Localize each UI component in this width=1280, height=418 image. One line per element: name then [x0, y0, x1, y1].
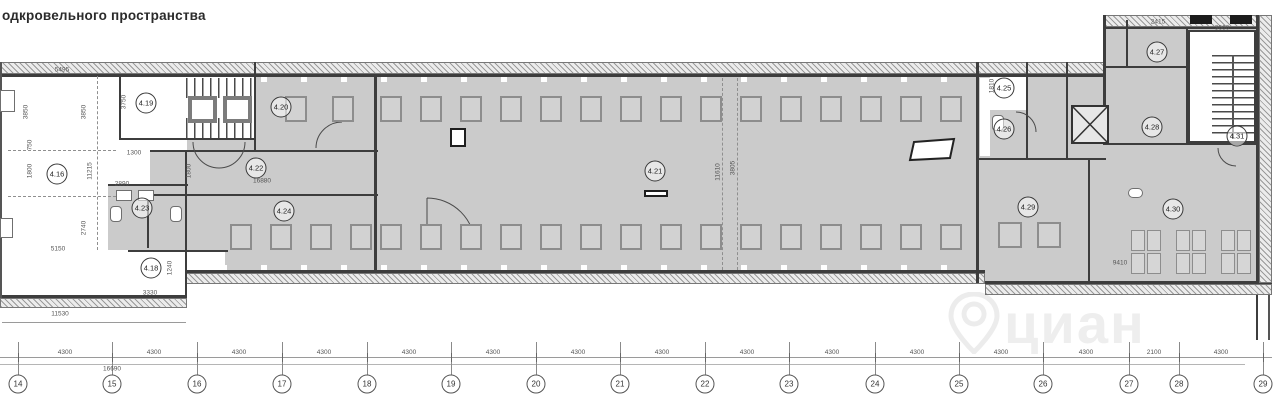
skylight: [500, 224, 522, 250]
map-pin-icon: [948, 292, 1000, 354]
skylight: [1192, 230, 1206, 251]
skylight: [860, 224, 882, 250]
watermark: циан: [948, 288, 1188, 358]
skylight: [540, 224, 562, 250]
grid-spacing-label: 4300: [232, 349, 246, 356]
grid-spacing-label: 4300: [58, 349, 72, 356]
skylight: [1147, 253, 1161, 274]
dimension-label: 11530: [51, 311, 69, 318]
dimension-label: 3750: [121, 95, 128, 109]
room-label-4-31: 4.31: [1227, 126, 1248, 147]
skylight: [1131, 253, 1145, 274]
skylight: [660, 224, 682, 250]
dimension-label: 9410: [1113, 260, 1127, 267]
grid-spacing-label: 4300: [910, 349, 924, 356]
grid-tick: [282, 353, 283, 362]
dimension-label: 750: [27, 140, 34, 151]
skylight: [1037, 222, 1061, 248]
grid-spacing-label: 4300: [740, 349, 754, 356]
skylight: [740, 224, 762, 250]
skylight: [350, 224, 372, 250]
floor-plan-canvas: одкровельного пространства: [0, 0, 1280, 418]
skylight: [700, 224, 722, 250]
dimension-label: 3660: [1215, 25, 1229, 32]
room-label-4-23: 4.23: [132, 198, 153, 219]
grid-tick: [1263, 353, 1264, 362]
grid-spacing-label: 4300: [825, 349, 839, 356]
skylight: [740, 96, 762, 122]
left-dimension-line: [2, 322, 186, 323]
room-label-4-18: 4.18: [141, 258, 162, 279]
grid-tick: [705, 353, 706, 362]
grid-tick: [18, 353, 19, 362]
grid-column-17: 17: [273, 375, 292, 394]
room-label-4-27: 4.27: [1147, 42, 1168, 63]
grid-spacing-label: 4300: [1214, 349, 1228, 356]
skylight: [820, 224, 842, 250]
grid-spacing-label: 4300: [147, 349, 161, 356]
overall-dimension-line-2: [0, 364, 1245, 365]
grid-spacing-label: 4300: [486, 349, 500, 356]
skylight: [1237, 253, 1251, 274]
grid-column-20: 20: [527, 375, 546, 394]
grid-spacing-label: 4300: [402, 349, 416, 356]
skylight: [270, 224, 292, 250]
grid-spacing-label: 4300: [571, 349, 585, 356]
dimension-label: 2890: [115, 181, 129, 188]
dimension-label: 3850: [81, 105, 88, 119]
skylight: [380, 96, 402, 122]
room-label-4-26: 4.26: [994, 119, 1015, 140]
skylight: [900, 96, 922, 122]
grid-column-25: 25: [950, 375, 969, 394]
skylight: [460, 96, 482, 122]
grid-column-28: 28: [1170, 375, 1189, 394]
grid-column-26: 26: [1034, 375, 1053, 394]
dimension-label: 11610: [715, 163, 722, 181]
grid-column-24: 24: [866, 375, 885, 394]
skylight: [500, 96, 522, 122]
skylight: [460, 224, 482, 250]
grid-spacing-label: 4300: [655, 349, 669, 356]
skylight: [900, 224, 922, 250]
skylight: [620, 224, 642, 250]
dimension-label: 1800: [27, 164, 34, 178]
skylight: [1131, 230, 1145, 251]
skylight: [310, 224, 332, 250]
skylight: [1176, 230, 1190, 251]
grid-tick: [367, 353, 368, 362]
watermark-text: циан: [1004, 291, 1146, 356]
skylight: [580, 96, 602, 122]
grid-tick: [875, 353, 876, 362]
room-label-4-29: 4.29: [1018, 197, 1039, 218]
dimension-label: 2740: [81, 221, 88, 235]
dimension-label: 11215: [87, 162, 94, 180]
grid-column-15: 15: [103, 375, 122, 394]
skylight: [820, 96, 842, 122]
skylight: [1237, 230, 1251, 251]
dimension-label: 3330: [143, 290, 157, 297]
grid-tick: [197, 353, 198, 362]
dimension-label: 1800: [186, 164, 193, 178]
grid-column-27: 27: [1120, 375, 1139, 394]
skylight: [230, 224, 252, 250]
grid-column-14: 14: [9, 375, 28, 394]
grid-tick: [451, 353, 452, 362]
grid-spacing-label: 4300: [317, 349, 331, 356]
skylight: [860, 96, 882, 122]
skylight: [940, 224, 962, 250]
dimension-label: 1810: [989, 79, 996, 93]
skylight: [1221, 253, 1235, 274]
dimension-label: 3850: [23, 105, 30, 119]
grid-tick: [112, 353, 113, 362]
room-label-4-19: 4.19: [136, 93, 157, 114]
skylight: [620, 96, 642, 122]
skylight: [1192, 253, 1206, 274]
skylight: [940, 96, 962, 122]
skylight: [380, 224, 402, 250]
grid-tick: [536, 353, 537, 362]
grid-column-22: 22: [696, 375, 715, 394]
skylight: [660, 96, 682, 122]
room-label-4-21: 4.21: [645, 161, 666, 182]
room-label-4-24: 4.24: [274, 201, 295, 222]
grid-column-16: 16: [188, 375, 207, 394]
grid-column-23: 23: [780, 375, 799, 394]
grid-column-21: 21: [611, 375, 630, 394]
skylight: [540, 96, 562, 122]
skylight: [420, 224, 442, 250]
skylight: [700, 96, 722, 122]
skylight: [780, 224, 802, 250]
room-label-4-22: 4.22: [246, 158, 267, 179]
grid-tick: [620, 353, 621, 362]
skylight: [420, 96, 442, 122]
room-label-4-28: 4.28: [1142, 117, 1163, 138]
grid-tick: [789, 353, 790, 362]
dimension-label: 3805: [730, 161, 737, 175]
dimension-label: 16880: [253, 178, 271, 185]
room-label-4-20: 4.20: [271, 97, 292, 118]
grid-column-29: 29: [1254, 375, 1273, 394]
dimension-label: 1300: [127, 150, 141, 157]
skylight: [1176, 253, 1190, 274]
room-label-4-30: 4.30: [1163, 199, 1184, 220]
skylight: [1221, 230, 1235, 251]
dimension-label: 5495: [55, 67, 69, 74]
grid-column-19: 19: [442, 375, 461, 394]
skylight: [332, 96, 354, 122]
skylight: [998, 222, 1022, 248]
skylight: [1147, 230, 1161, 251]
grid-column-18: 18: [358, 375, 377, 394]
skylight: [580, 224, 602, 250]
dimension-label: 1240: [167, 261, 174, 275]
dimension-label: 2415: [1151, 19, 1165, 26]
room-label-4-25: 4.25: [994, 78, 1015, 99]
room-label-4-16: 4.16: [47, 164, 68, 185]
grid-total-label: 16690: [103, 366, 121, 373]
dimension-label: 5150: [51, 246, 65, 253]
skylight: [780, 96, 802, 122]
